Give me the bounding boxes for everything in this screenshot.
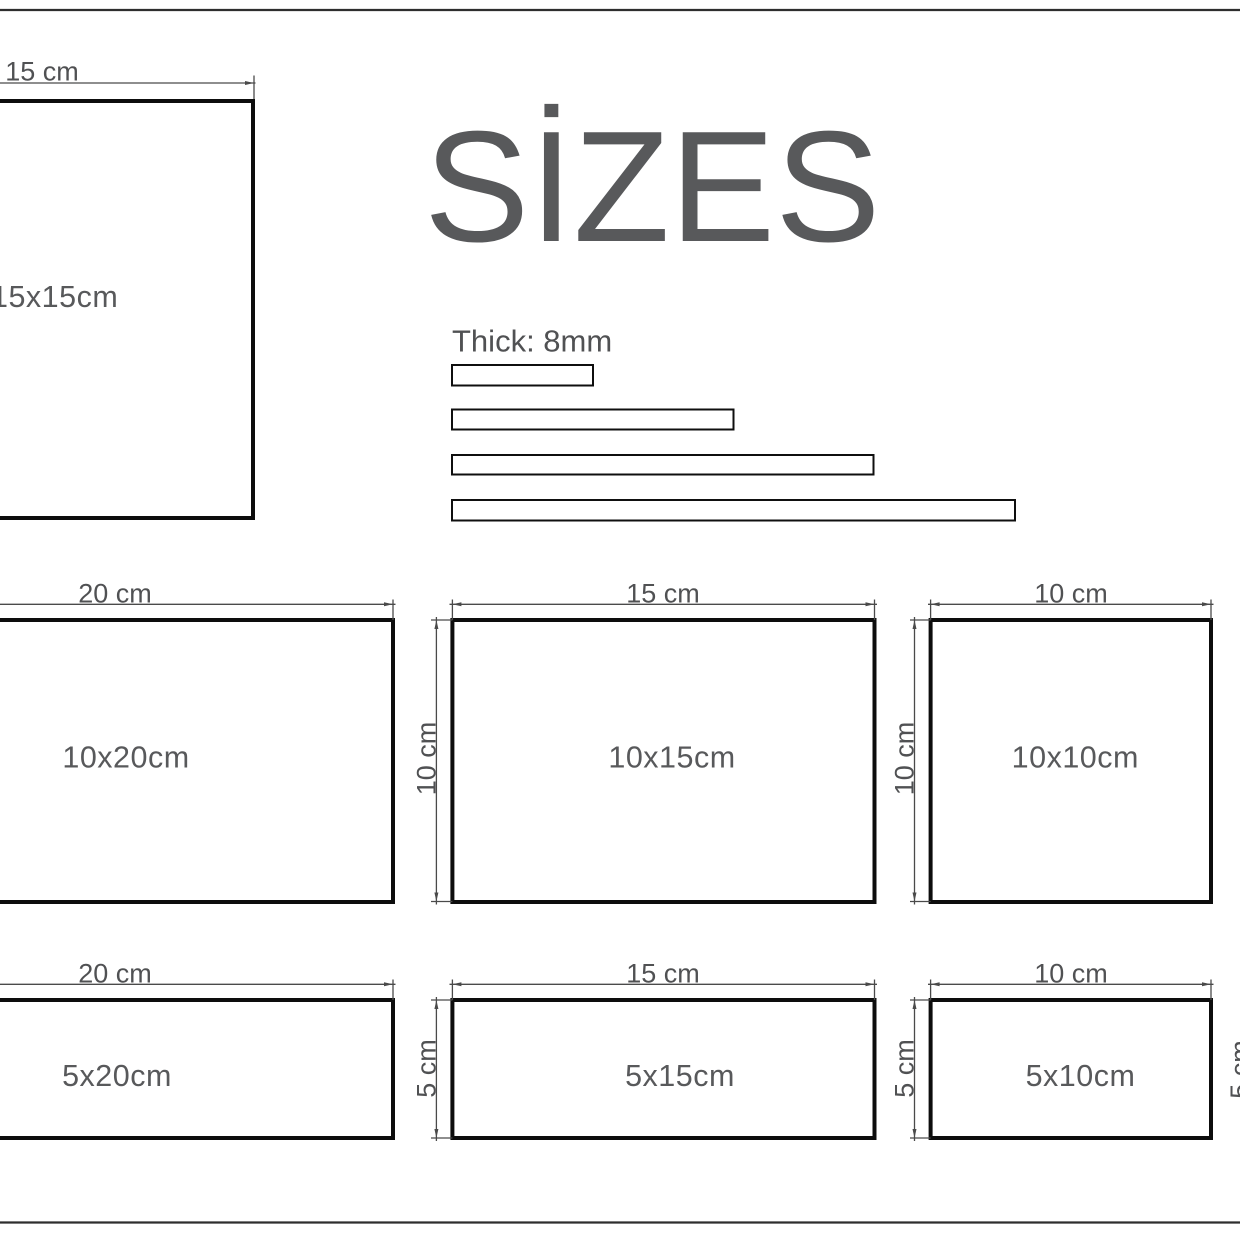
svg-text:5x10cm: 5x10cm — [1026, 1059, 1136, 1093]
svg-text:10 cm: 10 cm — [412, 722, 442, 796]
svg-text:Thick: 8mm: Thick: 8mm — [452, 324, 612, 359]
svg-text:10x15cm: 10x15cm — [608, 740, 735, 774]
svg-text:5x20cm: 5x20cm — [62, 1059, 172, 1093]
svg-text:15x15cm: 15x15cm — [0, 280, 118, 314]
svg-text:SİZES: SİZES — [424, 99, 881, 275]
svg-text:5x15cm: 5x15cm — [625, 1059, 735, 1093]
svg-text:15 cm: 15 cm — [5, 57, 79, 87]
svg-text:5 cm: 5 cm — [1225, 1040, 1240, 1099]
svg-text:10x10cm: 10x10cm — [1012, 740, 1139, 774]
svg-text:10x20cm: 10x20cm — [62, 740, 189, 774]
svg-text:10 cm: 10 cm — [890, 722, 920, 796]
svg-text:5 cm: 5 cm — [890, 1039, 920, 1098]
svg-text:5 cm: 5 cm — [412, 1039, 442, 1098]
